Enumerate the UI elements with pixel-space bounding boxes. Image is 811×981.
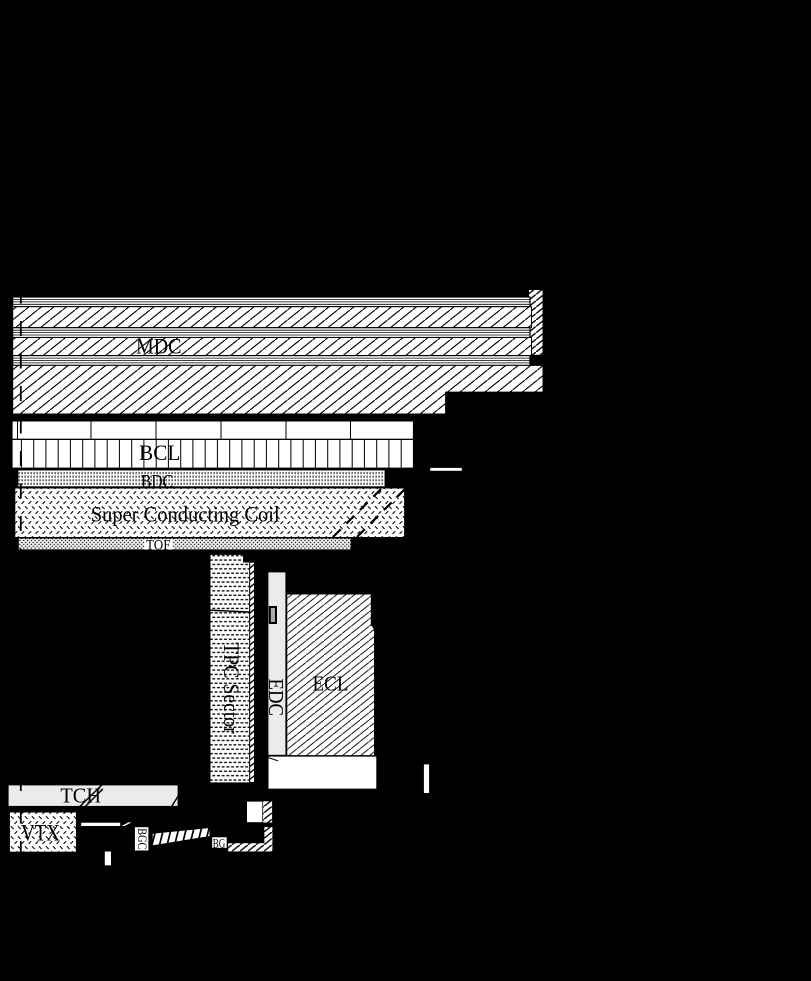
svg-text:BG: BG [213, 835, 226, 850]
svg-text:BGC: BGC [135, 828, 150, 849]
svg-text:VTX: VTX [21, 820, 60, 845]
svg-text:TPC Sector: TPC Sector [219, 642, 244, 734]
svg-text:MDC: MDC [136, 333, 182, 358]
svg-text:EDC: EDC [264, 679, 288, 717]
svg-text:BCL: BCL [139, 440, 180, 465]
svg-text:TOF: TOF [146, 538, 171, 554]
svg-text:Super Conducting Coil: Super Conducting Coil [91, 502, 280, 527]
svg-text:ECL: ECL [313, 672, 349, 696]
svg-text:TCH: TCH [60, 784, 101, 808]
